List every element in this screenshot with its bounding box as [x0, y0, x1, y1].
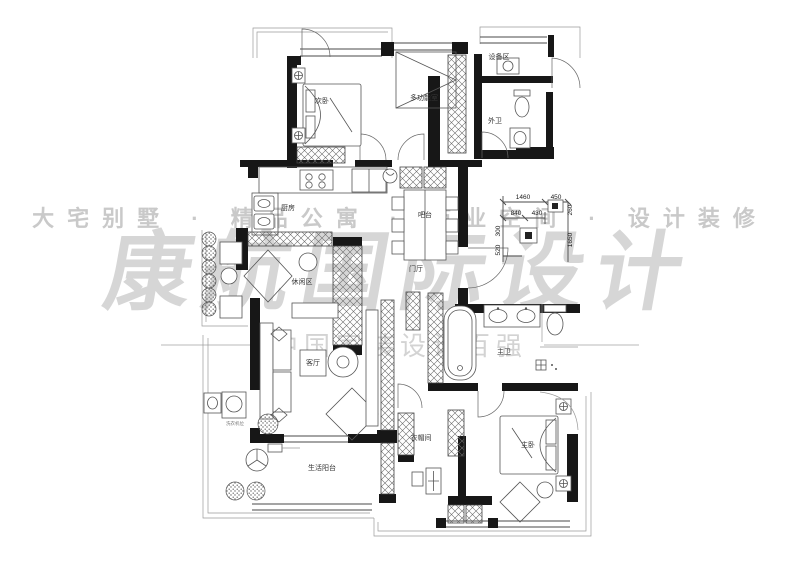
label-washer-spot: 洗衣机位	[226, 420, 244, 427]
floorplan-page: { "watermarks": { "top": "大宅别墅 · 精品公寓 · …	[0, 0, 800, 566]
room-label-leisure-area: 休闲区	[292, 277, 313, 286]
dim-1650: 1650	[567, 232, 574, 247]
room-label-secondary-bedroom: 次卧	[315, 96, 329, 105]
dim-300: 300	[495, 225, 502, 236]
master-bath-fixtures	[444, 304, 578, 380]
guest-bath-fixtures	[510, 90, 530, 148]
master-bedroom-furniture	[500, 392, 578, 522]
room-label-guest-bathroom: 外卫	[488, 116, 502, 125]
room-label-kitchen: 厨房	[281, 203, 295, 212]
secondary-bedroom-furniture	[292, 68, 361, 146]
dim-840: 840	[511, 210, 522, 217]
dim-450: 450	[551, 194, 562, 201]
dim-520: 520	[495, 244, 502, 255]
dimension-block: 1460 450 840 430 260 1650 520 300	[495, 194, 574, 262]
room-label-cloakroom: 衣帽间	[411, 433, 432, 442]
cloakroom-furniture	[412, 468, 441, 494]
room-label-multi-function-room: 多功能室	[410, 93, 438, 102]
room-label-master-bedroom: 主卧	[521, 440, 535, 449]
hatched-cabinetry	[248, 55, 482, 523]
room-label-entry-hall: 门厅	[409, 264, 423, 273]
floor-plan-svg: 1460 450 840 430 260 1650 520 300 次卧 多功能…	[0, 0, 800, 566]
kitchen-fixtures	[252, 167, 387, 235]
room-label-equipment-area: 设备区	[489, 52, 510, 61]
room-label-master-bathroom: 主卫	[497, 347, 511, 356]
dim-1460: 1460	[516, 194, 531, 201]
room-label-bar: 吧台	[418, 210, 432, 219]
room-label-living-balcony: 生活阳台	[308, 463, 336, 472]
dim-430: 430	[532, 210, 543, 217]
room-label-living-room: 客厅	[306, 358, 320, 367]
dim-260: 260	[567, 204, 574, 215]
